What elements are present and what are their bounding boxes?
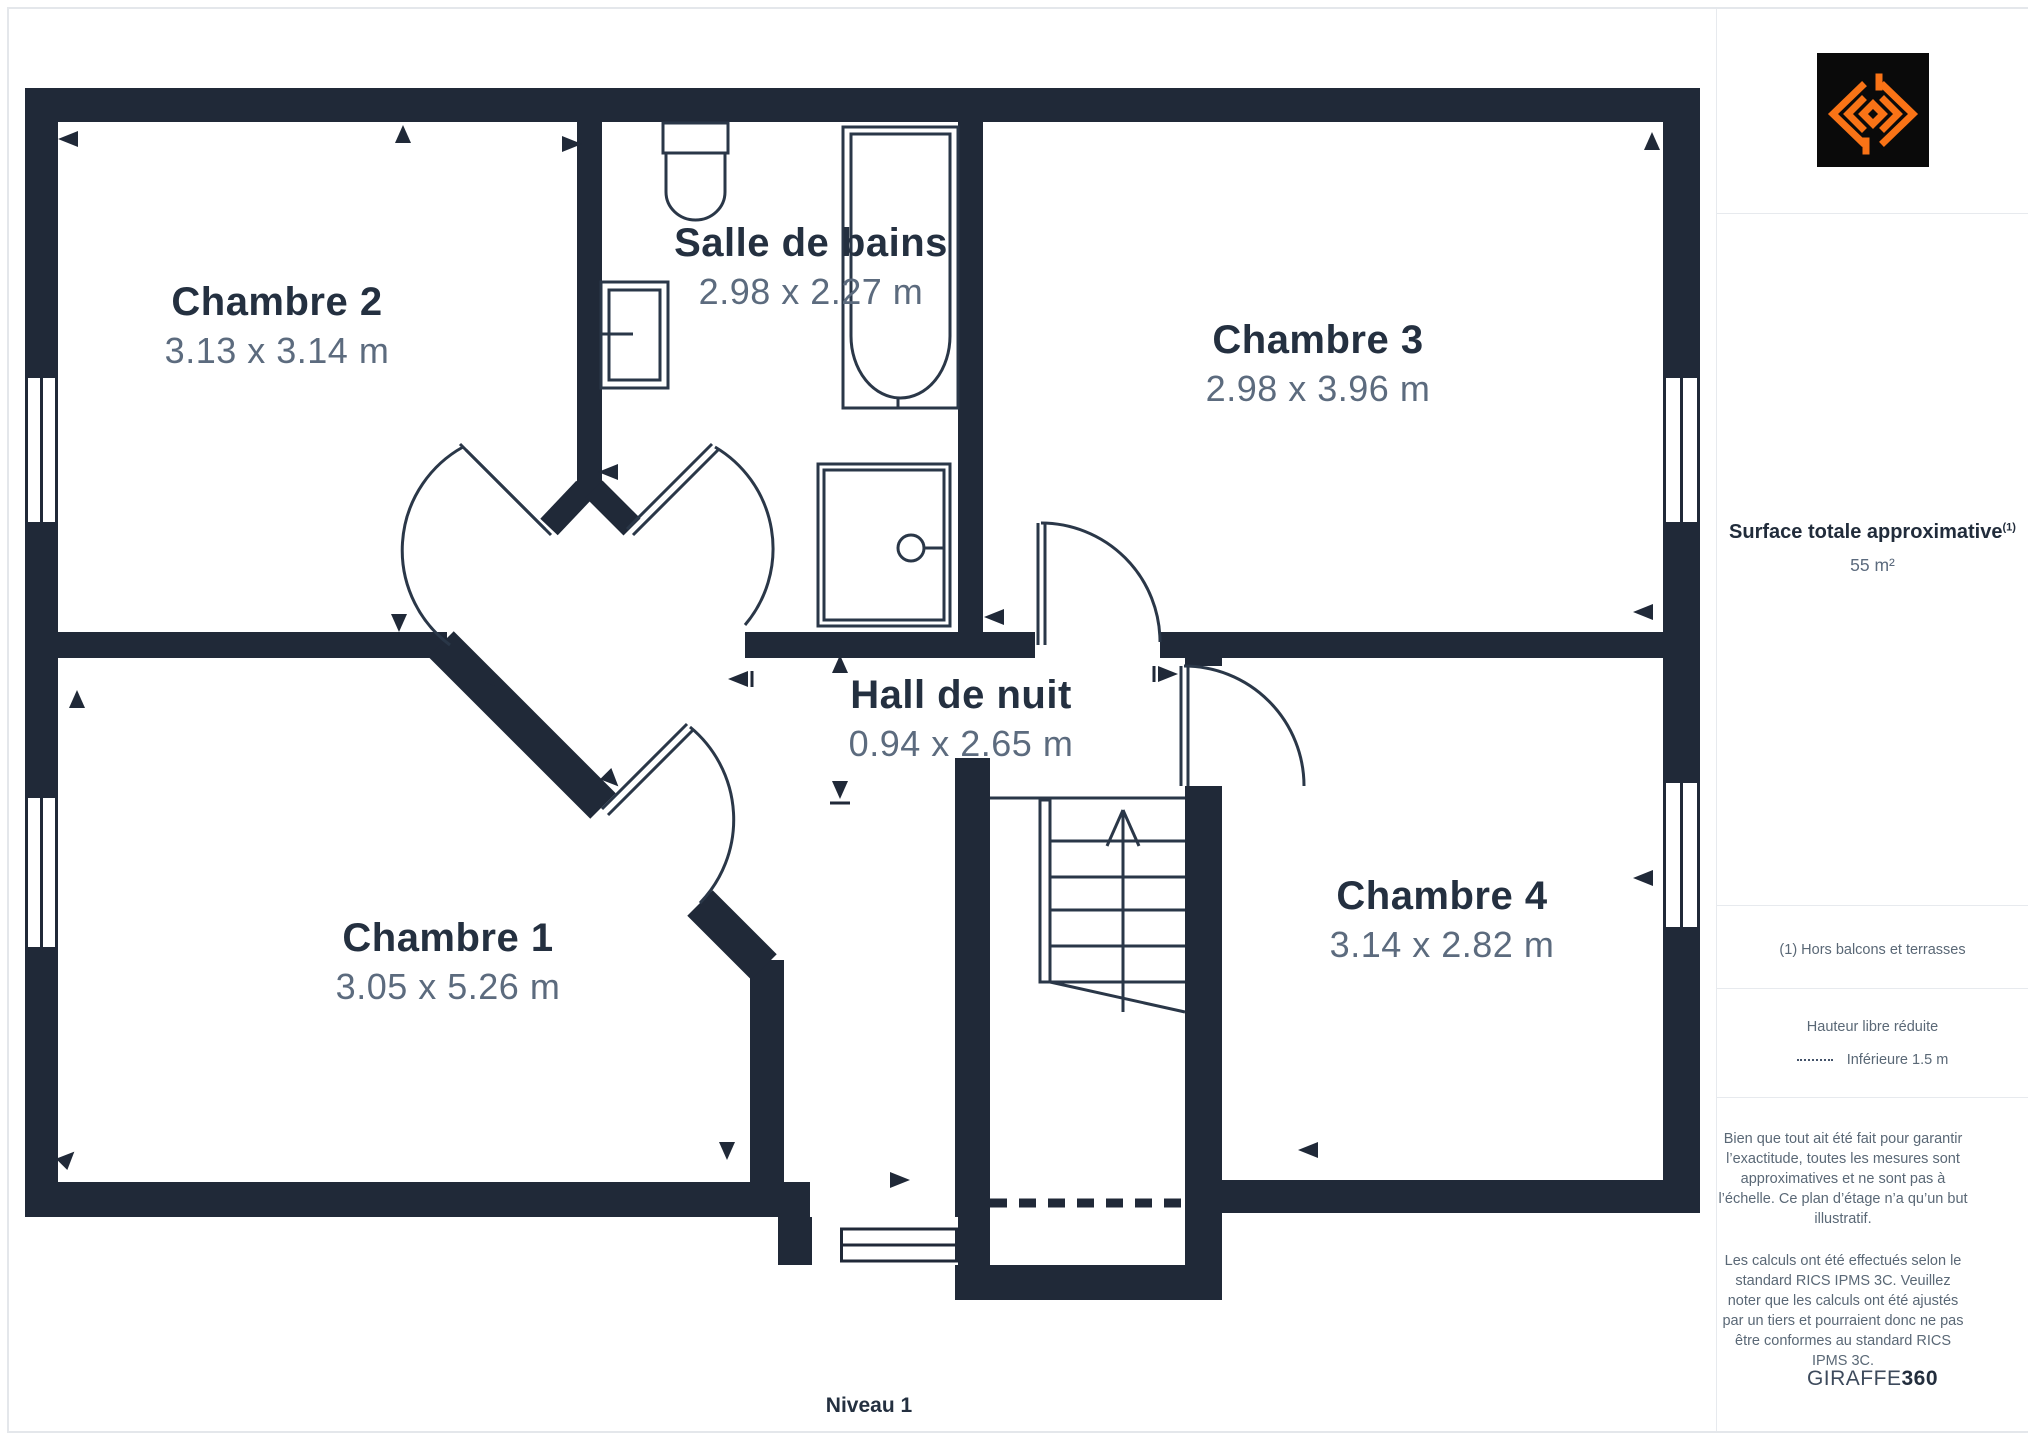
surface-footnote: (1) Hors balcons et terrasses — [1717, 942, 2028, 958]
room-name: Chambre 2 — [165, 278, 390, 326]
giraffe360-logo — [1817, 53, 1929, 167]
room-label-salle-de-bains: Salle de bains 2.98 x 2.27 m — [674, 219, 948, 315]
sidebar-divider — [1717, 1097, 2028, 1098]
room-name: Salle de bains — [674, 219, 948, 267]
info-panel: Surface totale approximative(1) 55 m² (1… — [1716, 9, 2028, 1431]
camera-direction-icon — [69, 690, 85, 708]
room-label-chambre-4: Chambre 4 3.14 x 2.82 m — [1330, 872, 1555, 968]
window-chambre4-icon — [1663, 780, 1700, 930]
room-label-chambre-1: Chambre 1 3.05 x 5.26 m — [336, 914, 561, 1010]
camera-direction-icon — [719, 1142, 735, 1160]
camera-direction-icon — [832, 781, 848, 799]
room-label-hall-de-nuit: Hall de nuit 0.94 x 2.65 m — [849, 671, 1074, 767]
camera-direction-icon — [1633, 604, 1653, 620]
camera-direction-icon — [1644, 132, 1660, 150]
sidebar-divider — [1717, 905, 2028, 906]
camera-direction-icon — [391, 614, 407, 632]
door-bains-icon — [627, 444, 773, 625]
sidebar-divider — [1717, 988, 2028, 989]
sidebar-divider — [1717, 213, 2028, 214]
room-dimensions: 2.98 x 2.27 m — [674, 269, 948, 315]
room-dimensions: 3.13 x 3.14 m — [165, 328, 390, 374]
height-legend: Hauteur libre réduite Inférieure 1.5 m — [1717, 1019, 2028, 1068]
window-chambre2-icon — [25, 375, 58, 525]
disclaimer-accuracy: Bien que tout ait été fait pour garantir… — [1717, 1129, 1969, 1229]
surface-value: 55 m² — [1717, 555, 2028, 576]
dashed-line-icon — [1797, 1059, 1833, 1061]
height-legend-title: Hauteur libre réduite — [1717, 1019, 2028, 1035]
room-dimensions: 3.05 x 5.26 m — [336, 964, 561, 1010]
giraffe360-logo-icon — [1817, 53, 1929, 167]
room-name: Chambre 4 — [1330, 872, 1555, 920]
camera-direction-icon — [1633, 870, 1653, 886]
surface-section: Surface totale approximative(1) 55 m² — [1717, 521, 2028, 576]
camera-direction-icon — [395, 125, 411, 143]
room-dimensions: 3.14 x 2.82 m — [1330, 922, 1555, 968]
room-dimensions: 0.94 x 2.65 m — [849, 721, 1074, 767]
brand-wordmark: GIRAFFE360 — [1717, 1367, 2028, 1391]
disclaimer-standard: Les calculs ont été effectués selon le s… — [1717, 1251, 1969, 1371]
camera-direction-icon — [728, 671, 748, 687]
door-chambre4-icon — [1181, 666, 1304, 786]
camera-direction-icon — [1158, 666, 1178, 682]
footnote-marker: (1) — [2002, 521, 2015, 533]
camera-direction-icon — [890, 1172, 910, 1188]
door-chambre3-icon — [1038, 523, 1160, 645]
room-label-chambre-3: Chambre 3 2.98 x 3.96 m — [1206, 316, 1431, 412]
door-chambre2-icon — [402, 444, 551, 645]
window-chambre1-icon — [25, 795, 58, 950]
door-chambre1-icon — [602, 724, 734, 903]
room-name: Chambre 3 — [1206, 316, 1431, 364]
toilet-icon — [663, 123, 728, 220]
camera-direction-icon — [58, 131, 78, 147]
diagonal-walls — [441, 489, 764, 967]
height-legend-item: Inférieure 1.5 m — [1847, 1052, 1949, 1068]
sink-icon — [600, 282, 668, 388]
camera-direction-icon — [56, 1146, 80, 1170]
shower-icon — [818, 464, 950, 626]
camera-direction-icon — [984, 609, 1004, 625]
camera-direction-icon — [1298, 1142, 1318, 1158]
room-dimensions: 2.98 x 3.96 m — [1206, 366, 1431, 412]
staircase — [990, 798, 1185, 1203]
room-name: Hall de nuit — [849, 671, 1074, 719]
window-porch-icon — [812, 1217, 958, 1265]
room-label-chambre-2: Chambre 2 3.13 x 3.14 m — [165, 278, 390, 374]
room-name: Chambre 1 — [336, 914, 561, 962]
bathroom-fixtures — [600, 123, 958, 626]
surface-title: Surface totale approximative(1) — [1717, 521, 2028, 544]
level-label: Niveau 1 — [826, 1394, 912, 1418]
window-chambre3-icon — [1663, 375, 1700, 525]
